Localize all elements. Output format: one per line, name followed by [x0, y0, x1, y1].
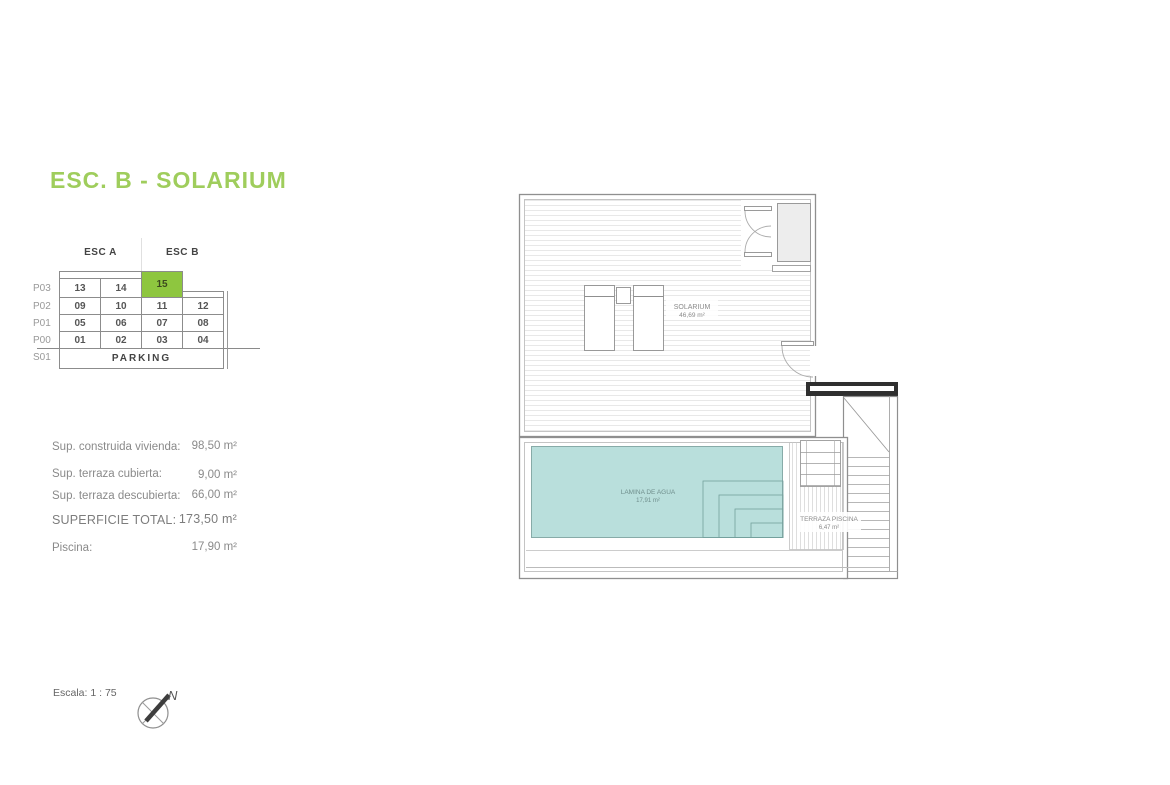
- plan-sheet: ESC. B - SOLARIUM ESC A ESC B P03 P02 P0…: [0, 0, 1170, 785]
- pool-terrace-area-label: 6,47 m²: [819, 525, 839, 531]
- pool-terrace-label: TERRAZA PISCINA: [800, 516, 858, 523]
- solarium-region: SOLARIUM 46,69 m²: [520, 195, 899, 437]
- pool-label: LAMINA DE AGUA: [621, 489, 676, 496]
- pool-region: LAMINA DE AGUA 17,91 m²: [532, 447, 784, 538]
- stair-shaft: [778, 204, 811, 262]
- pool-area-label: 17,91 m²: [636, 498, 660, 504]
- exterior-staircase: [844, 397, 898, 579]
- pool-enclosure: TERRAZA PISCINA 6,47 m² LAMINA DE AGUA 1…: [520, 438, 890, 579]
- scale-label: Escala: 1 : 75: [53, 687, 117, 699]
- floor-plan: SOLARIUM 46,69 m²: [0, 0, 1170, 785]
- solarium-area-label: 46,69 m²: [679, 312, 705, 319]
- notch-wall: [773, 266, 811, 272]
- north-compass: N: [138, 688, 178, 728]
- terrace-steps: [801, 441, 841, 487]
- wall-band: [806, 382, 898, 396]
- north-label: N: [168, 688, 178, 703]
- solarium-label: SOLARIUM: [674, 304, 711, 311]
